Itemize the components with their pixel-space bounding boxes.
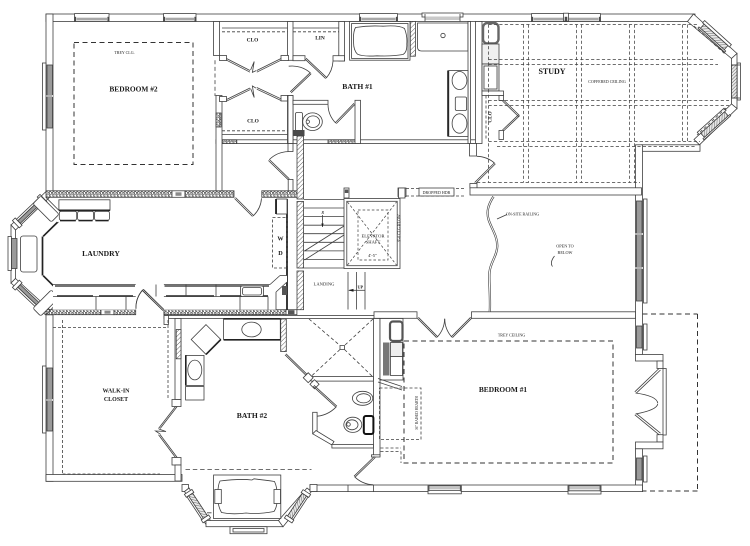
svg-text:BEDROOM #1: BEDROOM #1: [479, 385, 528, 394]
svg-text:OPEN TO: OPEN TO: [556, 244, 573, 249]
svg-text:4'-5": 4'-5": [368, 253, 377, 258]
svg-text:BELOW: BELOW: [558, 250, 573, 255]
svg-text:DROPPED HDR: DROPPED HDR: [423, 190, 451, 195]
svg-text:LAUNDRY: LAUNDRY: [82, 249, 120, 258]
svg-text:TREY CLG.: TREY CLG.: [114, 50, 134, 55]
svg-text:BATH #2: BATH #2: [237, 411, 268, 420]
svg-text:ON-SITE RAILING: ON-SITE RAILING: [506, 212, 539, 217]
svg-text:CLO: CLO: [247, 119, 259, 125]
svg-text:TREY CEILING: TREY CEILING: [498, 333, 525, 338]
svg-text:LANDING: LANDING: [314, 282, 336, 287]
svg-text:UP: UP: [358, 285, 364, 290]
svg-text:ELEVATOR: ELEVATOR: [361, 234, 385, 239]
svg-text:SHAFT: SHAFT: [366, 240, 381, 245]
svg-text:R: R: [320, 210, 324, 215]
svg-text:WALK-IN: WALK-IN: [102, 389, 130, 395]
svg-text:W: W: [277, 236, 284, 243]
svg-text:STUDY: STUDY: [538, 67, 565, 76]
svg-text:LIN: LIN: [315, 36, 325, 42]
svg-text:D: D: [278, 250, 283, 257]
svg-text:BEDROOM #2: BEDROOM #2: [109, 84, 158, 93]
svg-text:9'-0 CLG B'LOW: 9'-0 CLG B'LOW: [398, 214, 402, 242]
svg-text:COFFERED CEILING: COFFERED CEILING: [588, 79, 626, 84]
svg-text:CLOSET: CLOSET: [104, 397, 128, 403]
svg-text:CLO: CLO: [247, 38, 259, 44]
svg-text:36" RAISED HEARTH: 36" RAISED HEARTH: [415, 396, 419, 431]
svg-text:BATH #1: BATH #1: [342, 82, 373, 91]
